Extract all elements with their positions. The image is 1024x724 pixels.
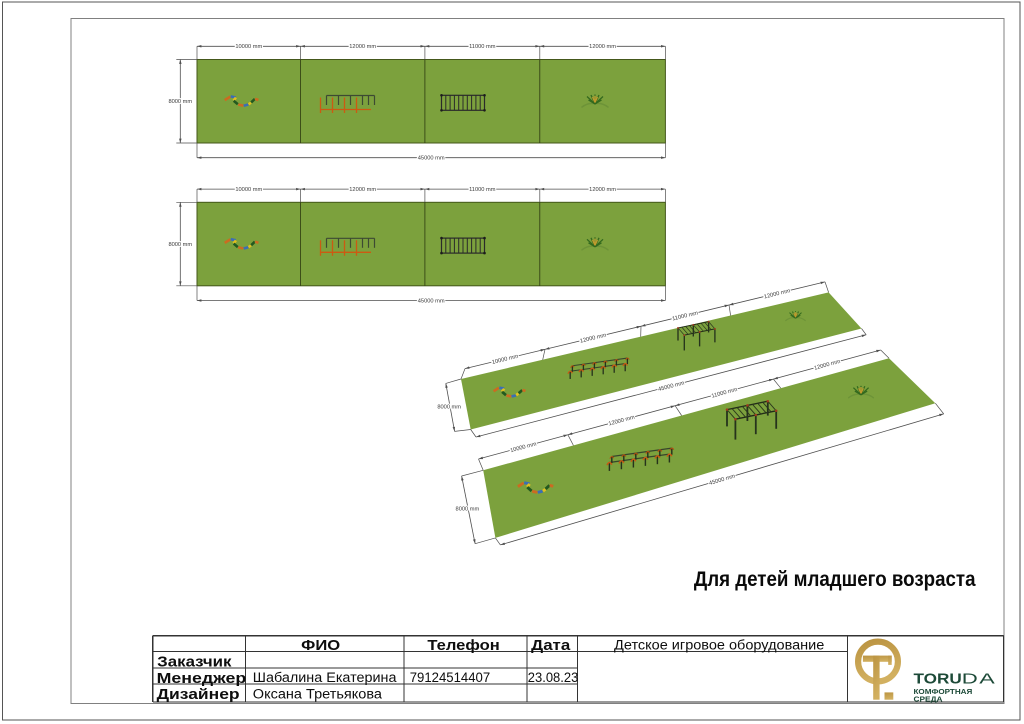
svg-text:A: A	[979, 672, 995, 688]
svg-text:10000 mm: 10000 mm	[235, 44, 262, 50]
svg-text:12000 mm: 12000 mm	[589, 44, 616, 50]
svg-text:Для детей младшего возраста: Для детей младшего возраста	[694, 567, 977, 591]
svg-text:79124514407: 79124514407	[410, 670, 491, 685]
svg-text:ФИО: ФИО	[301, 637, 340, 654]
svg-text:Заказчик: Заказчик	[157, 654, 232, 670]
svg-text:Оксана Третьякова: Оксана Третьякова	[253, 687, 383, 702]
svg-text:TORU: TORU	[914, 672, 962, 688]
svg-text:12000 mm: 12000 mm	[608, 415, 636, 428]
svg-text:8000 mm: 8000 mm	[437, 405, 461, 411]
svg-text:Шабалина Екатерина: Шабалина Екатерина	[253, 670, 397, 685]
svg-text:Дизайнер: Дизайнер	[157, 687, 240, 703]
svg-text:10000 mm: 10000 mm	[510, 441, 538, 454]
svg-text:45000 mm: 45000 mm	[658, 380, 686, 393]
svg-text:12000 mm: 12000 mm	[349, 44, 376, 50]
svg-text:45000 mm: 45000 mm	[418, 156, 445, 162]
svg-text:11000 mm: 11000 mm	[672, 310, 699, 322]
svg-text:12000 mm: 12000 mm	[579, 333, 607, 345]
svg-text:11000 mm: 11000 mm	[469, 44, 496, 50]
svg-text:45000 mm: 45000 mm	[709, 473, 737, 486]
svg-text:8000 mm: 8000 mm	[168, 242, 192, 248]
svg-text:Дата: Дата	[531, 637, 571, 654]
svg-text:23.08.23: 23.08.23	[528, 670, 579, 685]
svg-text:Менеджер: Менеджер	[157, 671, 247, 687]
svg-text:12000 mm: 12000 mm	[589, 187, 616, 193]
svg-text:8000 mm: 8000 mm	[168, 99, 192, 105]
svg-text:11000 mm: 11000 mm	[469, 187, 496, 193]
svg-text:8000 mm: 8000 mm	[456, 507, 480, 513]
svg-text:Детское игровое оборудование: Детское игровое оборудование	[614, 637, 824, 652]
svg-text:10000 mm: 10000 mm	[235, 187, 262, 193]
svg-text:12000 mm: 12000 mm	[814, 359, 842, 372]
svg-text:45000 mm: 45000 mm	[418, 298, 445, 304]
svg-text:12000 mm: 12000 mm	[349, 187, 376, 193]
svg-text:СРЕДА: СРЕДА	[914, 694, 943, 703]
svg-text:Телефон: Телефон	[427, 637, 499, 654]
svg-text:10000 mm: 10000 mm	[491, 354, 519, 366]
svg-text:D: D	[962, 672, 978, 688]
svg-text:11000 mm: 11000 mm	[711, 387, 738, 400]
svg-text:12000 mm: 12000 mm	[763, 288, 791, 300]
